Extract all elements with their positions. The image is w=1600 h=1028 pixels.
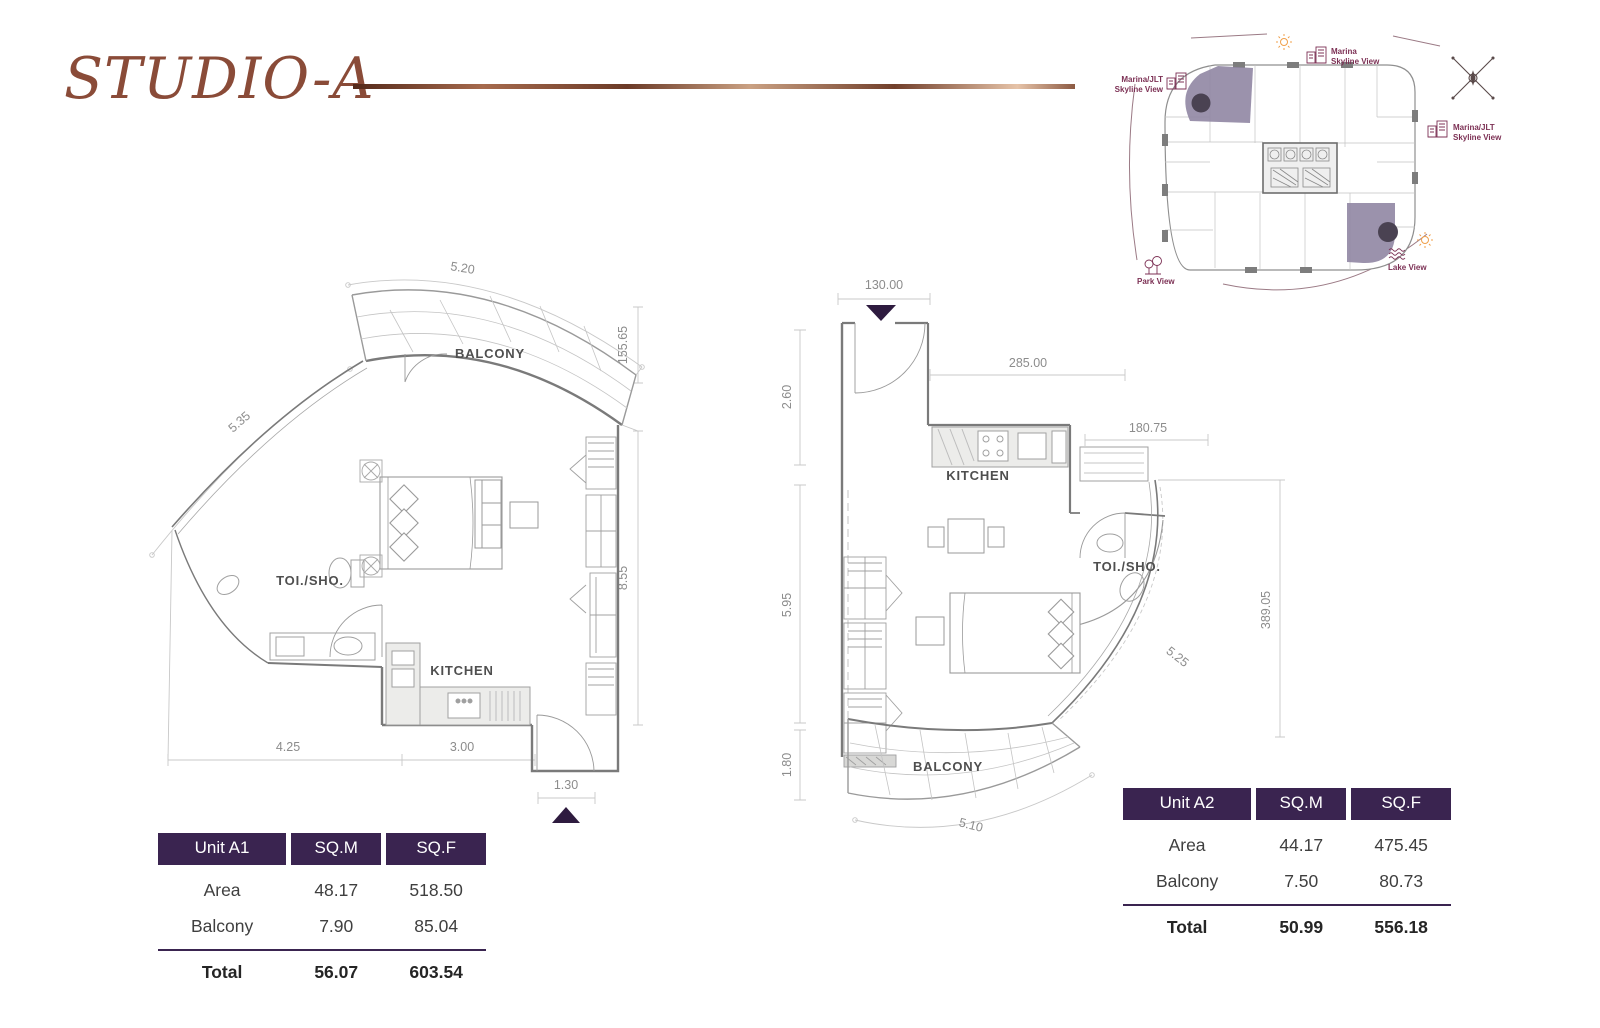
a2-dim-bottom: 5.10 [957, 815, 984, 834]
table-row: Balcony 7.90 85.04 [158, 916, 486, 937]
table-a2-header-unit: Unit A2 [1123, 788, 1251, 820]
table-a1-header-row: Unit A1 SQ.M SQ.F [158, 833, 486, 865]
table-a2-total-sqf: 556.18 [1351, 917, 1451, 938]
table-row: Area 48.17 518.50 [158, 880, 486, 901]
a2-kitchen-counter [932, 427, 1068, 467]
table-a2-area-sqf: 475.45 [1351, 835, 1451, 856]
area-table-unit-a1: Unit A1 SQ.M SQ.F Area 48.17 518.50 Balc… [158, 833, 486, 983]
table-a2-balcony-sqm: 7.50 [1256, 871, 1346, 892]
table-a1-balcony-sqm: 7.90 [291, 916, 381, 937]
a1-room-label-kitchen: KITCHEN [430, 663, 493, 678]
table-a2-total-row: Total 50.99 556.18 [1123, 904, 1451, 938]
keyplan-label-marina-skyline-2: Skyline View [1331, 57, 1380, 66]
a1-dim-bottom-mid: 3.00 [450, 740, 474, 754]
floor-plan-unit-a2: 130.00 2.60 5.95 1.80 285.00 180.75 389.… [780, 275, 1300, 860]
table-a1-header-unit: Unit A1 [158, 833, 286, 865]
a2-dim-left-bottom: 1.80 [780, 753, 794, 777]
a2-dim-left-mid: 5.95 [780, 593, 794, 617]
a2-room-label-balcony: BALCONY [913, 759, 983, 774]
a2-wardrobes [844, 557, 902, 767]
a1-bed [380, 477, 502, 569]
keyplan-label-marina-jlt-left-1: Marina/JLT [1121, 75, 1163, 84]
key-plan: Marina Skyline View Marina/JLT Skyline V… [1095, 22, 1510, 300]
a2-bed [950, 593, 1080, 673]
keyplan-label-marina-jlt-left-2: Skyline View [1115, 85, 1164, 94]
a2-dim-left-top: 2.60 [780, 385, 794, 409]
a1-dim-diagonal: 5.35 [226, 409, 254, 436]
a1-ceiling-light-symbols [360, 460, 382, 577]
a1-dim-top: 5.20 [450, 259, 476, 277]
table-a1-total-sqf: 603.54 [386, 962, 486, 983]
table-a2-header-sqf: SQ.F [1351, 788, 1451, 820]
a1-dim-right-top: 155.65 [616, 326, 630, 364]
sun-icon [1276, 34, 1292, 50]
keyplan-core [1263, 143, 1337, 193]
buildings-icon-top [1307, 47, 1326, 63]
trees-icon [1145, 257, 1162, 275]
a1-dim-bottom-left: 4.25 [276, 740, 300, 754]
table-a1-area-sqm: 48.17 [291, 880, 381, 901]
table-a2-total-sqm: 50.99 [1256, 917, 1346, 938]
table-a1-balcony-label: Balcony [158, 916, 286, 937]
title-rule [353, 84, 1075, 89]
a2-dim-mid: 180.75 [1129, 421, 1167, 435]
keyplan-label-lake-view: Lake View [1388, 263, 1427, 272]
a2-dining-set [928, 519, 1004, 553]
buildings-icon-right [1428, 121, 1447, 137]
keyplan-label-marina-jlt-right-2: Skyline View [1453, 133, 1502, 142]
a2-room-label-kitchen: KITCHEN [946, 468, 1009, 483]
a2-entry-arrow-icon [866, 305, 896, 321]
table-a2-balcony-label: Balcony [1123, 871, 1251, 892]
floor-plan-unit-a1: 5.20 5.35 155.65 8.55 4.25 3.00 1.30 BAL… [150, 255, 650, 840]
table-a2-header-row: Unit A2 SQ.M SQ.F [1123, 788, 1451, 820]
a2-dim-entry: 130.00 [865, 278, 903, 292]
table-a1-header-sqf: SQ.F [386, 833, 486, 865]
table-a1-balcony-sqf: 85.04 [386, 916, 486, 937]
a1-entry-arrow-icon [552, 807, 580, 823]
area-table-unit-a2: Unit A2 SQ.M SQ.F Area 44.17 475.45 Balc… [1123, 788, 1451, 938]
a1-kitchen-counter [386, 643, 530, 725]
keyplan-label-marina-jlt-right-1: Marina/JLT [1453, 123, 1495, 132]
table-row: Area 44.17 475.45 [1123, 835, 1451, 856]
table-a1-area-label: Area [158, 880, 286, 901]
table-a1-total-row: Total 56.07 603.54 [158, 949, 486, 983]
page-title: STUDIO-A [64, 46, 375, 112]
a1-dim-entry: 1.30 [554, 778, 578, 792]
a1-room-label-toilet: TOI./SHO. [276, 573, 344, 588]
table-a1-area-sqf: 518.50 [386, 880, 486, 901]
a2-toilet-fixtures [1080, 447, 1149, 605]
table-a1-header-sqm: SQ.M [291, 833, 381, 865]
table-a2-total-label: Total [1123, 917, 1251, 938]
a2-dimension-lines [794, 293, 1285, 827]
compass-icon [1452, 57, 1494, 99]
table-a2-balcony-sqf: 80.73 [1351, 871, 1451, 892]
table-a2-area-sqm: 44.17 [1256, 835, 1346, 856]
table-a2-area-label: Area [1123, 835, 1251, 856]
table-row: Balcony 7.50 80.73 [1123, 871, 1451, 892]
keyplan-label-marina-skyline-1: Marina [1331, 47, 1357, 56]
a2-room-label-toilet: TOI./SHO. [1093, 559, 1161, 574]
a2-side-table [916, 617, 944, 645]
a2-dim-right: 389.05 [1259, 591, 1273, 629]
table-a2-header-sqm: SQ.M [1256, 788, 1346, 820]
a1-wardrobes [570, 437, 616, 715]
a2-dim-diagonal: 5.25 [1164, 644, 1192, 670]
table-a1-total-sqm: 56.07 [291, 962, 381, 983]
table-a1-total-label: Total [158, 962, 286, 983]
a1-room-label-balcony: BALCONY [455, 346, 525, 361]
brochure-page: STUDIO-A [0, 0, 1600, 1028]
a2-dim-top: 285.00 [1009, 356, 1047, 370]
